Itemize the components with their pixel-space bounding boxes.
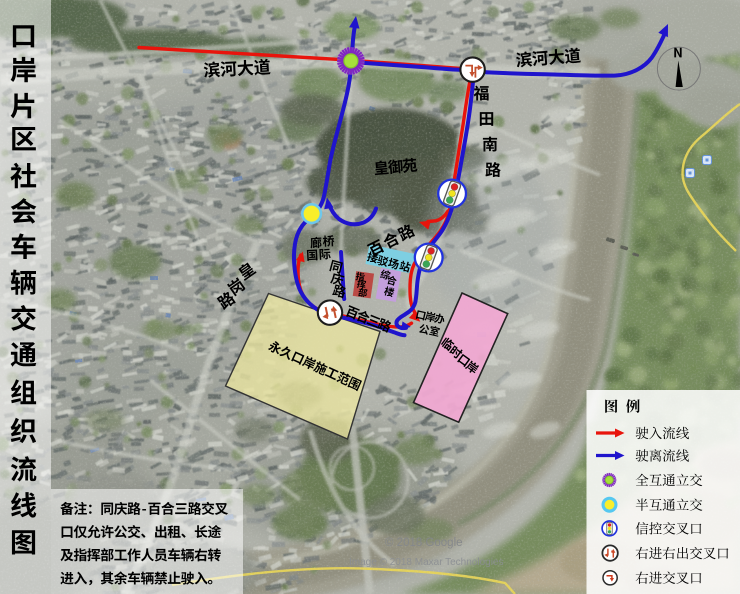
- svg-text:© 2018 Google: © 2018 Google: [385, 537, 463, 549]
- svg-text:Image © 2018 Maxar Technologie: Image © 2018 Maxar Technologies: [349, 557, 504, 568]
